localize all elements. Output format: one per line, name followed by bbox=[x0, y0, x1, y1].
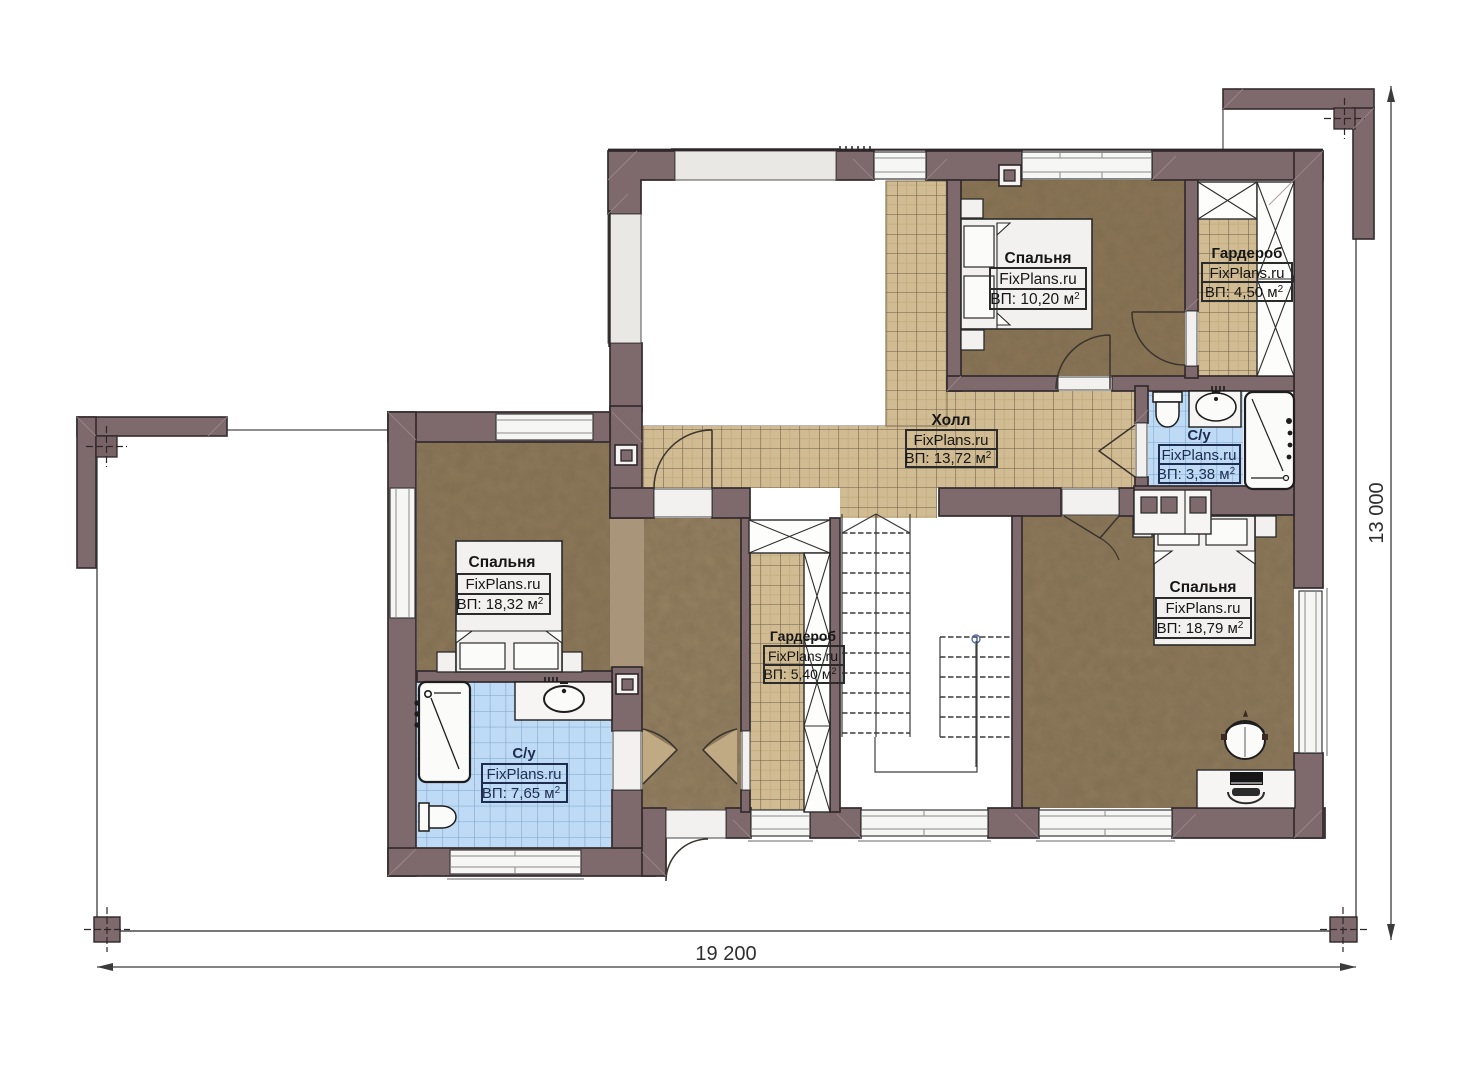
svg-text:FixPlans.ru: FixPlans.ru bbox=[465, 576, 540, 593]
svg-text:ВП: 7,65 м2: ВП: 7,65 м2 bbox=[482, 785, 561, 802]
svg-text:ВП: 10,20 м2: ВП: 10,20 м2 bbox=[990, 291, 1080, 308]
svg-text:13 000: 13 000 bbox=[1366, 482, 1388, 543]
svg-text:Спальня: Спальня bbox=[1170, 579, 1237, 596]
svg-text:FixPlans.ru: FixPlans.ru bbox=[999, 271, 1077, 288]
svg-text:ВП: 3,38 м2: ВП: 3,38 м2 bbox=[1157, 466, 1236, 483]
svg-text:ВП: 5,40 м2: ВП: 5,40 м2 bbox=[764, 666, 837, 682]
svg-text:FixPlans.ru: FixPlans.ru bbox=[1209, 265, 1284, 282]
svg-text:FixPlans.ru: FixPlans.ru bbox=[913, 432, 988, 449]
svg-text:ВП: 4,50 м2: ВП: 4,50 м2 bbox=[1205, 284, 1284, 301]
svg-text:ВП: 18,32 м2: ВП: 18,32 м2 bbox=[457, 596, 544, 613]
svg-text:С/у: С/у bbox=[1187, 427, 1211, 444]
svg-text:FixPlans.ru: FixPlans.ru bbox=[768, 648, 838, 664]
svg-text:FixPlans.ru: FixPlans.ru bbox=[486, 766, 561, 783]
svg-text:FixPlans.ru: FixPlans.ru bbox=[1165, 600, 1240, 617]
svg-text:Гардероб: Гардероб bbox=[1212, 245, 1283, 262]
svg-text:FixPlans.ru: FixPlans.ru bbox=[1161, 447, 1236, 464]
svg-text:Холл: Холл bbox=[932, 412, 971, 429]
svg-text:Спальня: Спальня bbox=[469, 554, 536, 571]
svg-text:ВП: 13,72 м2: ВП: 13,72 м2 bbox=[905, 450, 992, 467]
svg-text:ВП: 18,79 м2: ВП: 18,79 м2 bbox=[1157, 620, 1244, 637]
svg-text:Спальня: Спальня bbox=[1005, 250, 1072, 267]
svg-text:С/у: С/у bbox=[512, 745, 536, 762]
svg-text:19 200: 19 200 bbox=[695, 943, 756, 965]
svg-text:Гардероб: Гардероб bbox=[770, 628, 837, 644]
